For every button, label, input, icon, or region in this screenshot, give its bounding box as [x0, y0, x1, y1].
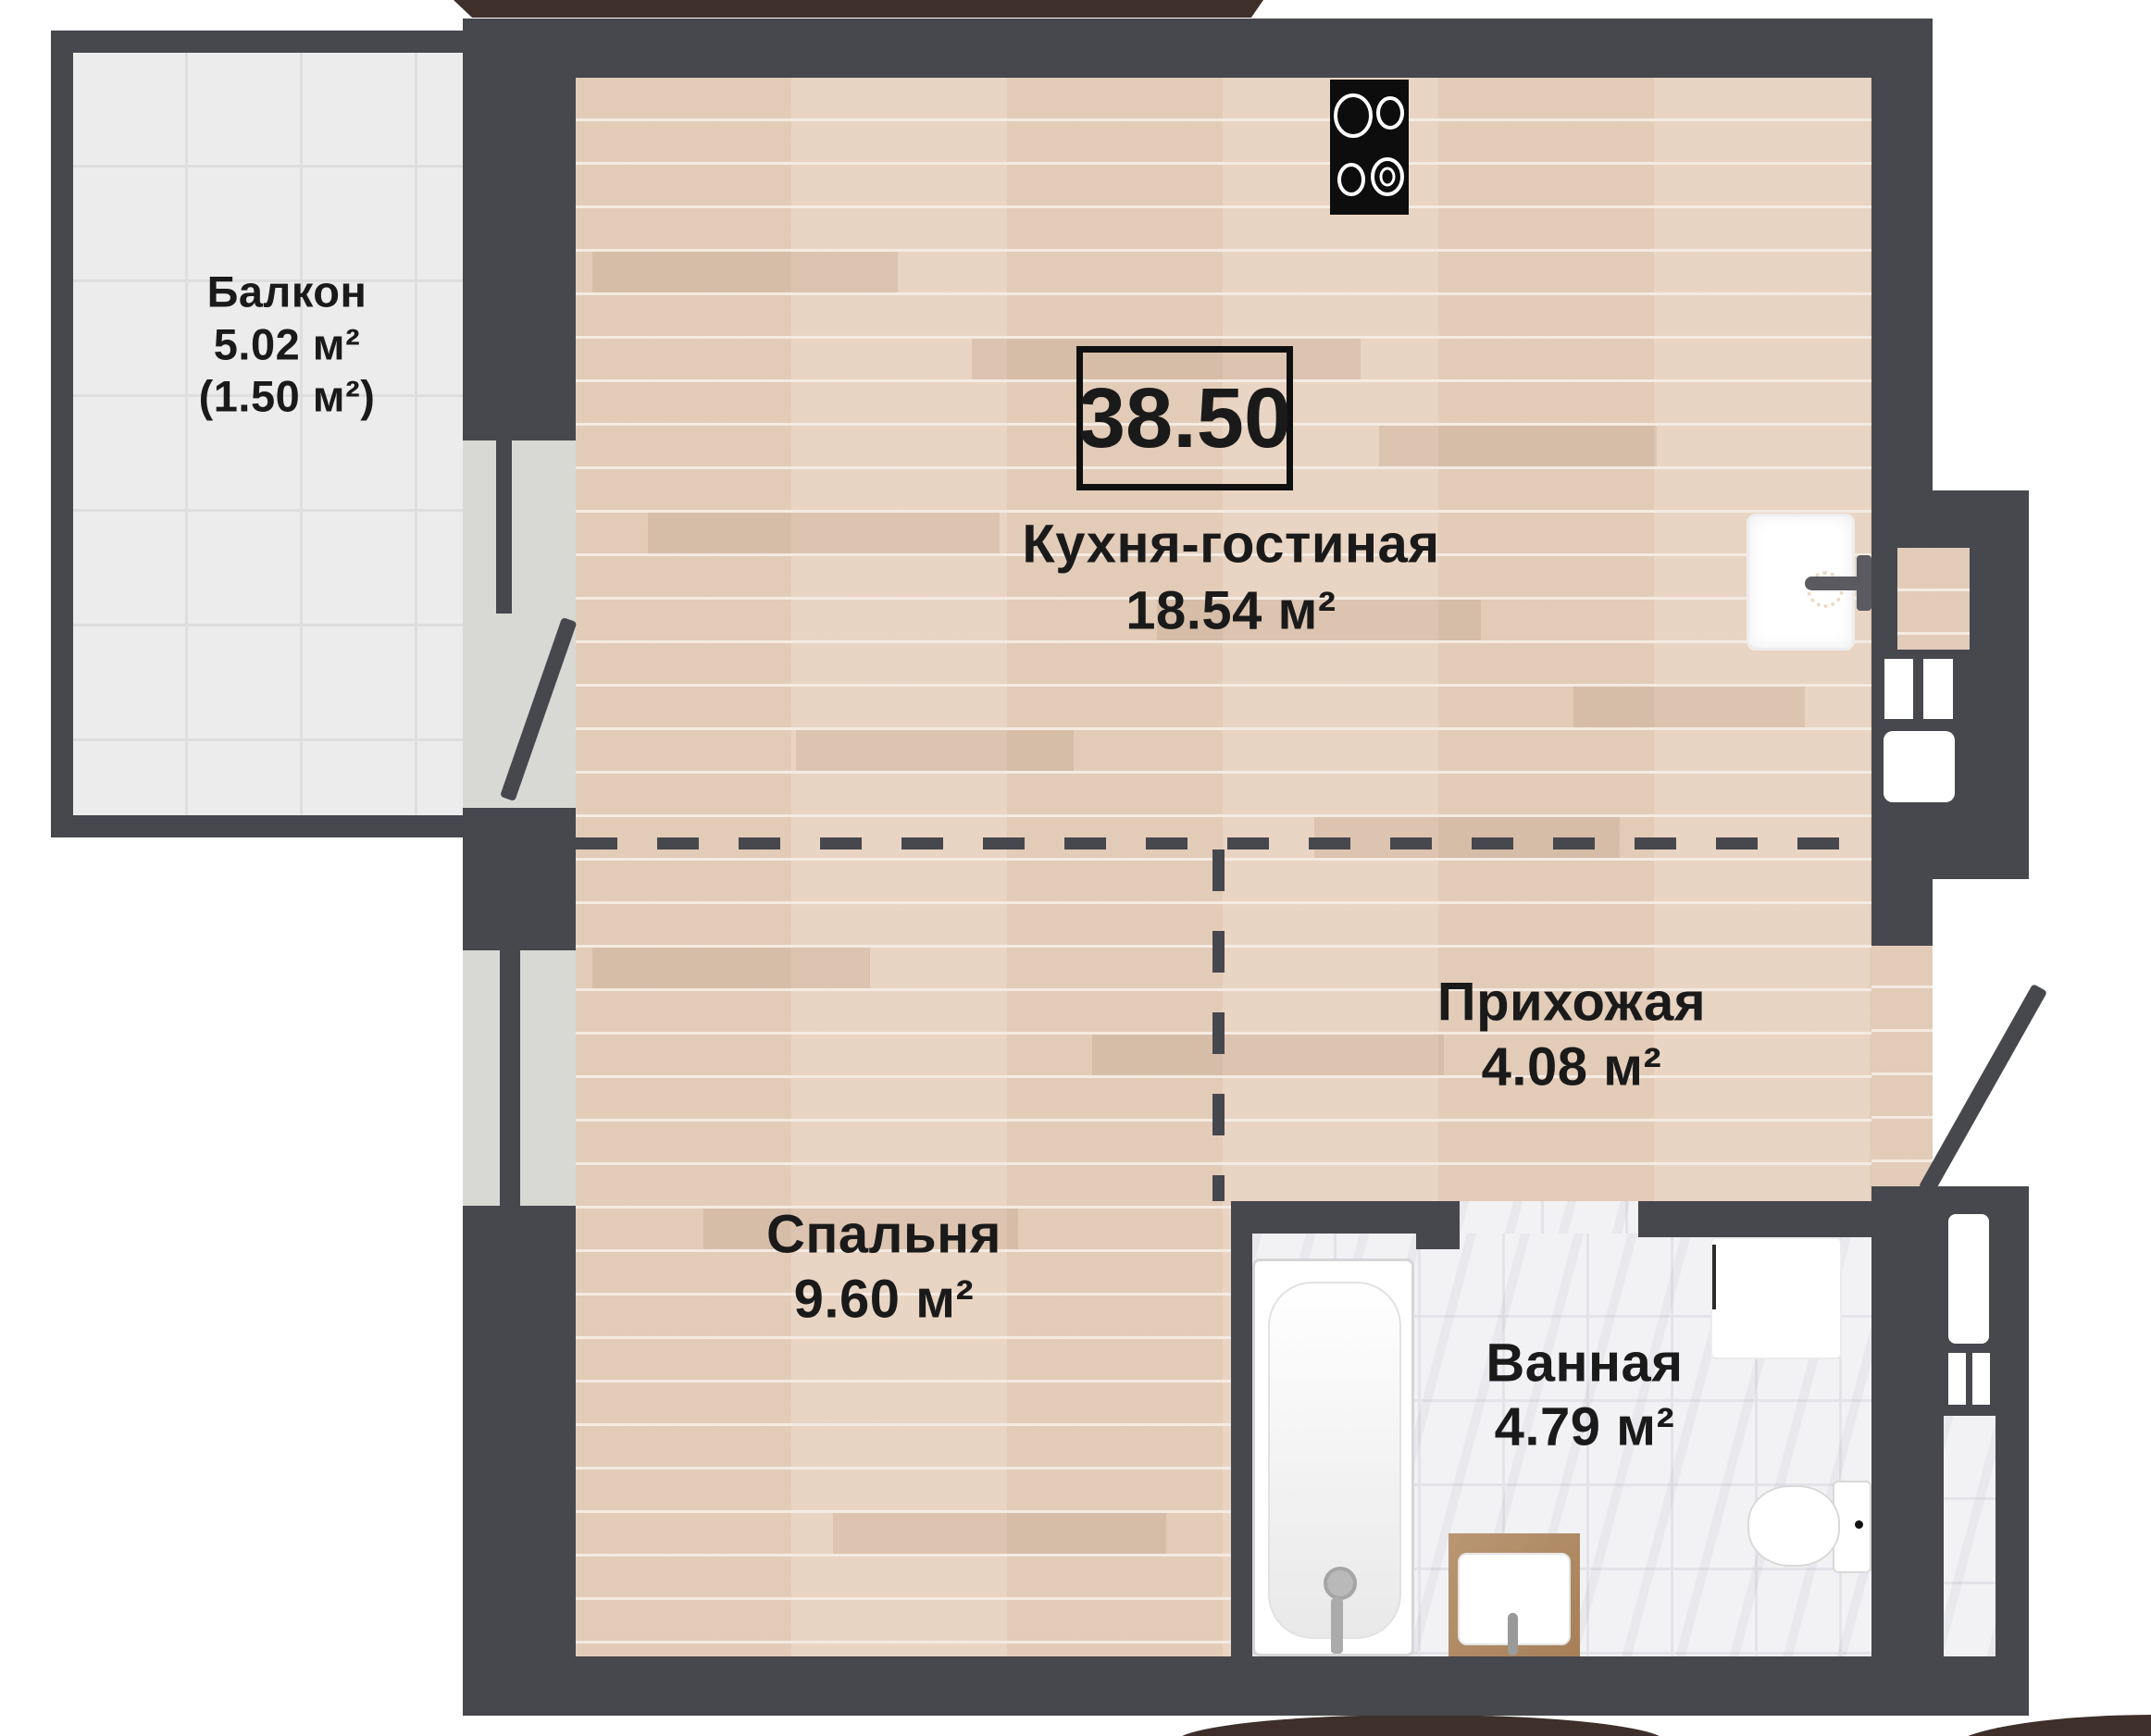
hallway-area-label: 4.08 м² — [1482, 1036, 1662, 1098]
zone-divider-vertical — [1212, 849, 1225, 1201]
balcony-area-label: 5.02 м² — [214, 319, 360, 370]
wall-bottom — [463, 1656, 2029, 1716]
vanity-sink-icon — [1449, 1533, 1580, 1656]
building-fragment-bottom-right — [1948, 1715, 2151, 1736]
wood-plank-shade — [648, 513, 1000, 553]
hallway-name-label: Прихожая — [1437, 972, 1706, 1034]
wall-right-upper — [1871, 78, 1933, 490]
kitchen-faucet-icon — [1805, 555, 1871, 611]
wood-plank-shade — [1573, 687, 1805, 727]
wall-left — [463, 78, 576, 1656]
kitchen-living-name-label: Кухня-гостиная — [1022, 514, 1439, 576]
balcony-window-frame — [496, 440, 512, 614]
vent-shaft-small-2 — [1923, 659, 1953, 719]
vent-shaft-small-1 — [1884, 659, 1913, 719]
bathroom-wall-left — [1231, 1234, 1252, 1656]
entrance-threshold-floor — [1871, 945, 1933, 1186]
bathroom-area-label: 4.79 м² — [1495, 1396, 1675, 1458]
bathroom-wall-step — [1416, 1234, 1460, 1249]
balcony-floor — [73, 53, 463, 815]
vent-shaft-bath-small-1 — [1948, 1353, 1966, 1405]
balcony-area-reduced-label: (1.50 м²) — [199, 371, 376, 422]
bedroom-name-label: Спальня — [766, 1204, 1001, 1266]
wood-plank-shade — [796, 730, 1074, 771]
washing-machine-icon — [1710, 1237, 1842, 1359]
total-area-box: 38.50 — [1076, 346, 1293, 490]
building-fragment-bottom-left — [1175, 1715, 1666, 1736]
wood-plank-shade — [1379, 426, 1657, 466]
bathroom-name-label: Ванная — [1486, 1333, 1683, 1395]
toilet-icon — [1740, 1476, 1871, 1578]
wood-plank-shade — [592, 948, 870, 988]
wall-right-door-jamb — [1871, 879, 1933, 946]
vent-shaft-bath-small-2 — [1972, 1353, 1990, 1405]
wall-top — [463, 19, 1933, 78]
floor-plan: 38.50 Балкон 5.02 м² (1.50 м²) Кухня-гос… — [0, 0, 2151, 1736]
zone-divider-horizontal — [576, 837, 1871, 849]
building-fragment-top — [454, 0, 1263, 18]
wall-niche-wood — [1897, 548, 1970, 650]
entrance-door-leaf — [1919, 984, 2047, 1195]
vent-shaft-bath-tall — [1948, 1214, 1989, 1344]
wood-plank-shade — [1092, 1035, 1444, 1075]
wall-niche-marble — [1944, 1416, 1996, 1656]
bathtub-icon — [1252, 1259, 1414, 1656]
wood-plank-shade — [833, 1513, 1166, 1554]
vent-shaft-large — [1884, 731, 1955, 802]
wood-plank-shade — [592, 252, 898, 292]
bedroom-area-label: 9.60 м² — [794, 1269, 975, 1331]
stove-cooktop-icon — [1330, 80, 1409, 215]
kitchen-living-area-label: 18.54 м² — [1125, 580, 1336, 642]
balcony-name-label: Балкон — [207, 267, 367, 317]
total-area-value: 38.50 — [1078, 370, 1291, 467]
bedroom-window-frame — [500, 950, 520, 1206]
bathroom-wall-top-left — [1231, 1201, 1460, 1234]
bathroom-wall-top-right — [1638, 1201, 1871, 1237]
